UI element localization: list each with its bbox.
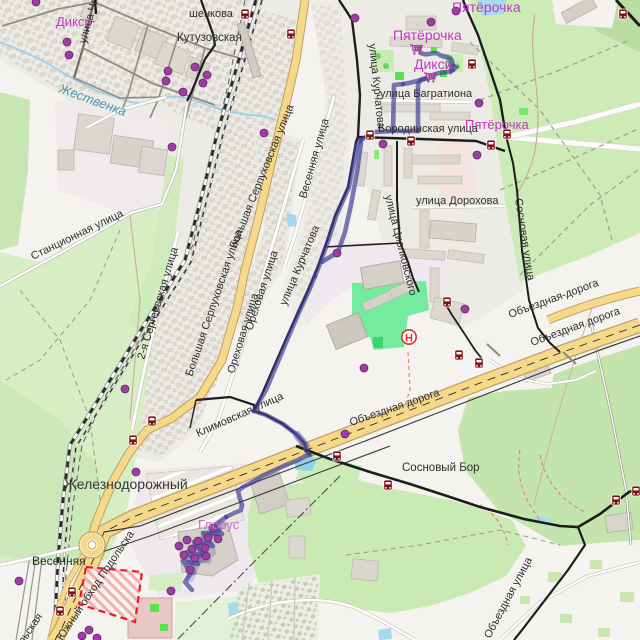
svg-text:Н: Н <box>405 333 413 345</box>
svg-text:улица Дорохова: улица Дорохова <box>416 195 499 207</box>
svg-text:Сосновый Бор: Сосновый Бор <box>402 462 480 474</box>
svg-text:шенкова: шенкова <box>189 8 234 20</box>
svg-text:Пятёрочка: Пятёрочка <box>452 0 521 15</box>
svg-text:Глобус: Глобус <box>198 517 240 532</box>
svg-text:Бородинская улица: Бородинская улица <box>378 123 479 135</box>
svg-text:Весенняя: Весенняя <box>32 554 86 568</box>
svg-text:Пятёрочка: Пятёрочка <box>465 117 529 132</box>
svg-text:улица Багратиона: улица Багратиона <box>380 88 473 100</box>
svg-text:Кутузовская: Кутузовская <box>177 32 242 44</box>
svg-text:Дикси: Дикси <box>414 56 452 72</box>
svg-text:Пятёрочка: Пятёрочка <box>393 27 462 43</box>
svg-text:Дикси: Дикси <box>56 14 92 29</box>
svg-text:Железнодорожный: Железнодорожный <box>64 476 188 492</box>
